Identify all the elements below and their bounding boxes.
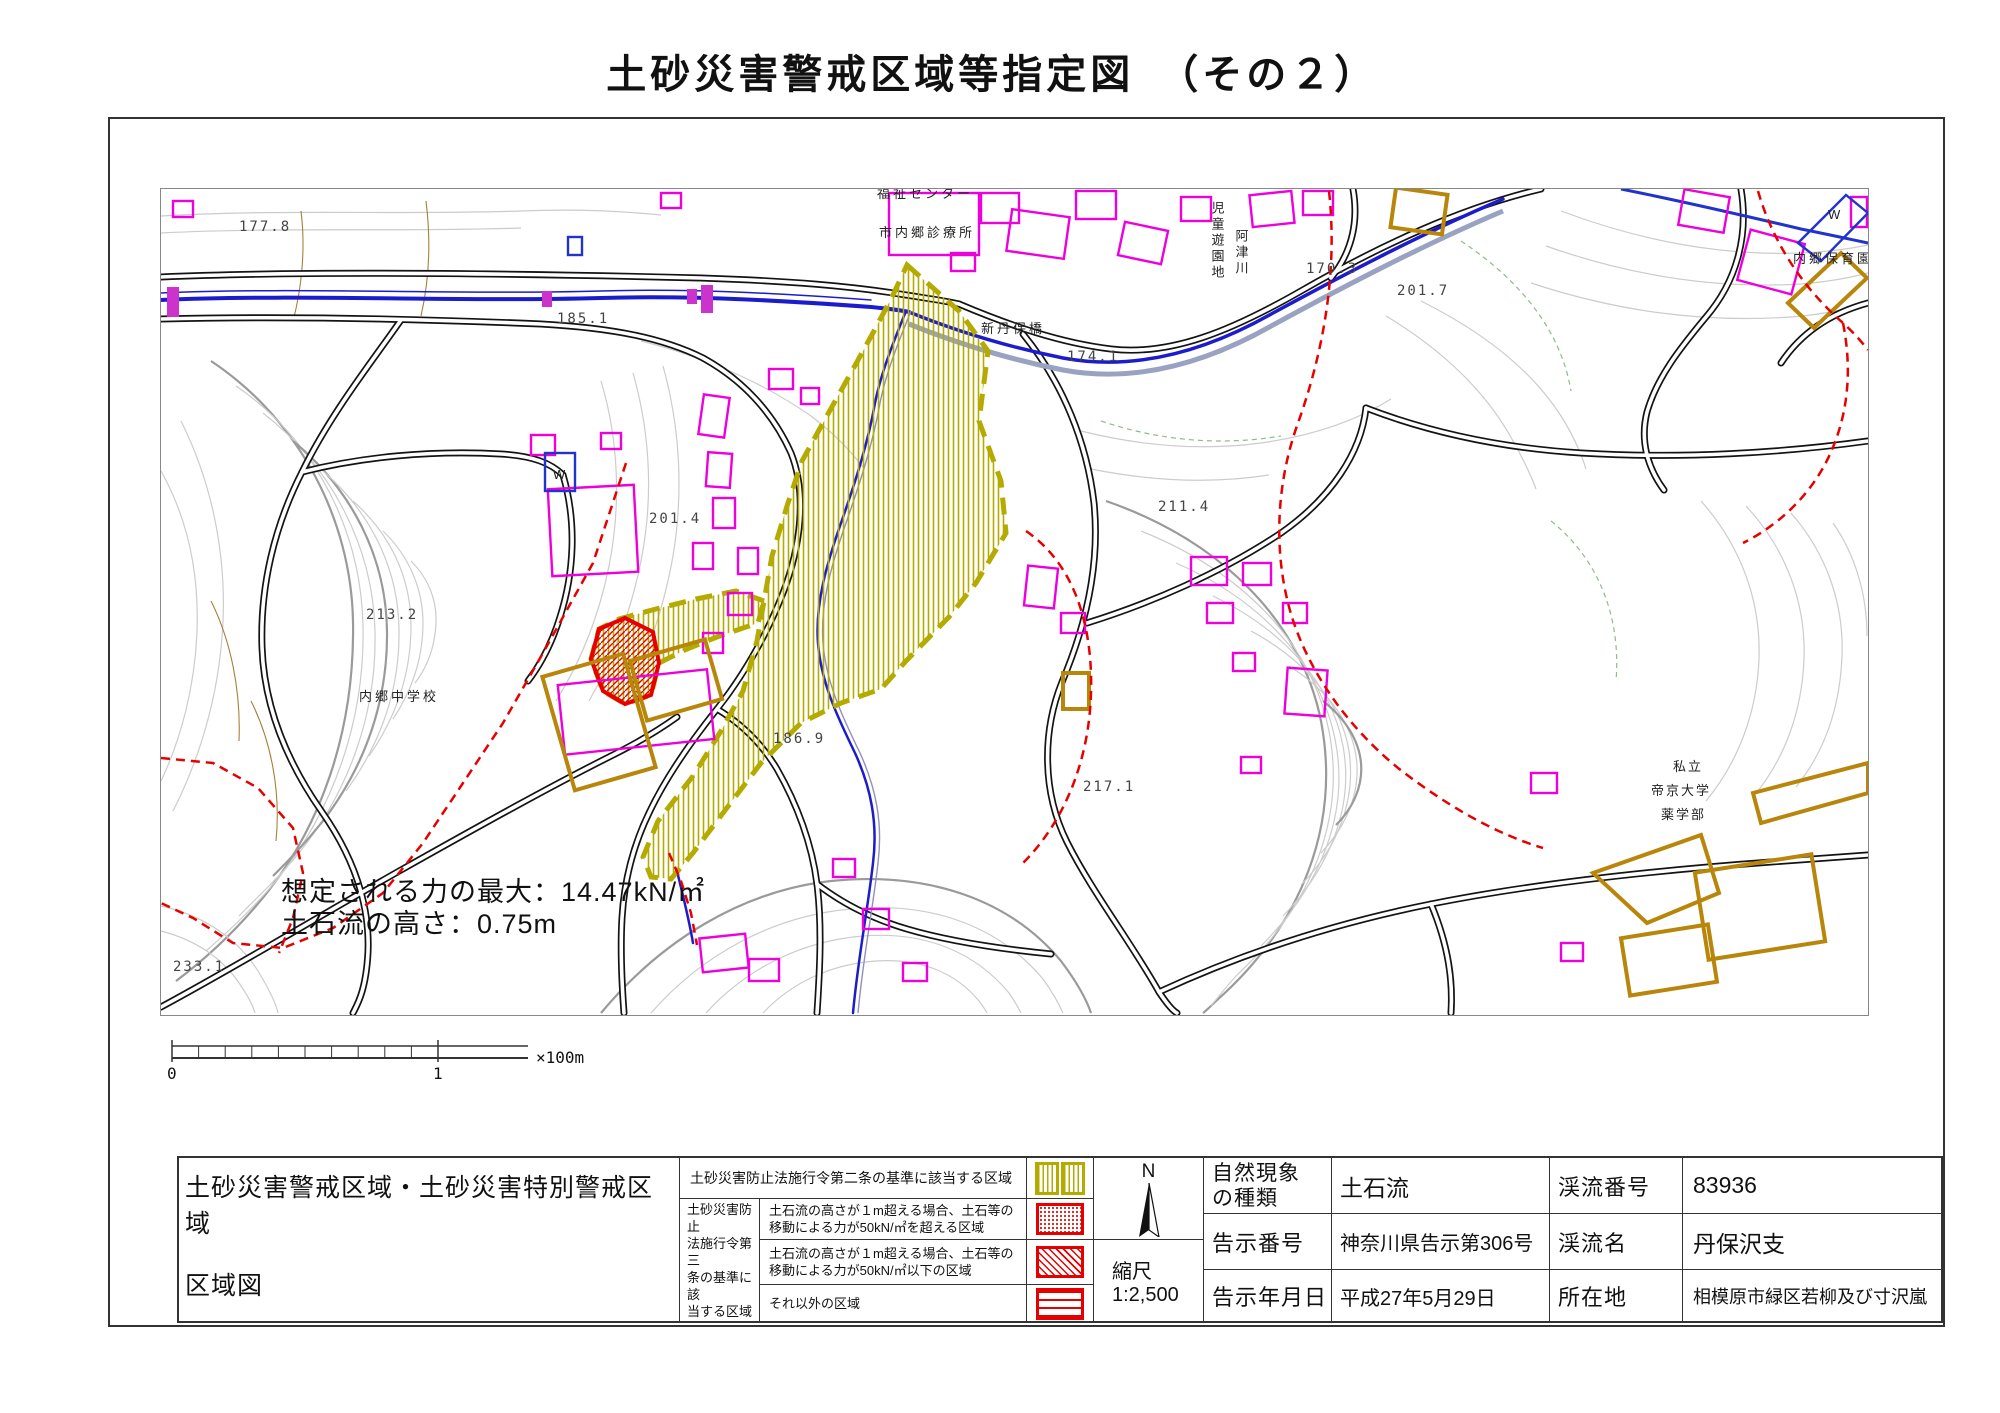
junior-high-label: 内郷中学校 [359,689,439,704]
legend-row2-line2: 移動による力が50kN/㎡を超える区域 [769,1219,1026,1236]
elevation-label: 174.1 [1067,349,1119,365]
stream-name-value-cell: 丹保沢支 [1683,1214,1941,1270]
elevation-label: 186.9 [773,731,825,747]
elevation-label: 233.1 [173,959,225,975]
notice-no-label: 告示番号 [1212,1226,1331,1258]
notice-date-label: 告示年月日 [1212,1280,1331,1312]
university-label-3: 薬学部 [1661,807,1706,822]
weir-mark [167,287,179,317]
north-arrow-icon [1136,1183,1162,1237]
sheet-title-cell: 土砂災害警戒区域・土砂災害特別警戒区域 区域図 [179,1158,680,1323]
north-label: N [1094,1161,1203,1183]
university-label-1: 私立 [1673,759,1703,774]
max-force-annotation: 想定される力の最大：14.47kN/㎡ [281,877,705,907]
nature-label-cell: 自然現象 の種類 [1204,1158,1332,1214]
elevation-label: 201.4 [649,511,701,527]
sheet: { "title": "土砂災害警戒区域等指定図 （その２）", "map_an… [0,0,2000,1413]
legend-row3-cell: 土石流の高さが１m超える場合、土石等の 移動による力が50kN/㎡以下の区域 [760,1240,1027,1285]
legend-row4-text: それ以外の区域 [769,1295,1026,1312]
legend-row2-cell: 土石流の高さが１m超える場合、土石等の 移動による力が50kN/㎡を超える区域 [760,1199,1027,1240]
stream-no-label: 渓流番号 [1558,1170,1682,1202]
elevation-label: 201.7 [1397,283,1449,299]
scale-value: 1:2,500 [1112,1284,1203,1307]
stream-name-label: 渓流名 [1558,1226,1682,1258]
article3-line3: 条の基準に該 [687,1269,759,1303]
red-diagonal-swatch-icon [1036,1246,1084,1278]
nature-label-line1: 自然現象 [1212,1161,1331,1186]
weir-mark [687,289,697,304]
well-mark-w1: W [553,467,566,482]
legend-row3-line1: 土石流の高さが１m超える場合、土石等の [769,1245,1026,1262]
red-dots-swatch-icon [1036,1203,1084,1235]
notice-date-value-cell: 平成27年5月29日 [1332,1270,1550,1323]
stream-name-label-cell: 渓流名 [1550,1214,1683,1270]
nature-value: 土石流 [1340,1169,1549,1203]
page-title: 土砂災害警戒区域等指定図 （その２） [606,42,1378,100]
swatch-cell-2 [1027,1199,1094,1240]
location-value: 相模原市緑区若柳及び寸沢嵐 [1693,1283,1941,1309]
elevation-label: 211.4 [1158,499,1210,515]
stream-no-value: 83936 [1693,1172,1941,1199]
special-warning-zone [591,265,1006,879]
special-zone-swatch-icon [1061,1162,1085,1195]
notice-date-value: 平成27年5月29日 [1340,1282,1549,1311]
scale-bar: 0 1 ×100m [160,1036,620,1086]
river-name-label: 阿津川 [1234,229,1249,277]
sheet-title-line1: 土砂災害警戒区域・土砂災害特別警戒区域 [185,1168,673,1240]
notice-date-label-cell: 告示年月日 [1204,1270,1332,1323]
sheet-title-line2: 区域図 [185,1266,673,1302]
childrens-park-label: 児童遊園地 [1210,201,1225,281]
compass-cell: N [1094,1158,1204,1240]
stream-no-label-cell: 渓流番号 [1550,1158,1683,1214]
special-zone-swatch-icon [1035,1162,1059,1195]
article2-cell: 土砂災害防止法施行令第二条の基準に該当する区域 [680,1158,1027,1199]
notice-no-value-cell: 神奈川県告示第306号 [1332,1214,1550,1270]
nature-label-line2: の種類 [1212,1186,1331,1211]
map-canvas: 市内郷診療所 福祉センター 児童遊園地 阿津川 新丹保橋 内郷中学校 内郷保育園… [161,189,1868,1015]
location-label-cell: 所在地 [1550,1270,1683,1323]
nursery-label: 内郷保育園 [1793,251,1868,266]
scale-zero-label: 0 [167,1064,177,1083]
scale-one-label: 1 [433,1064,443,1083]
flow-height-annotation: 土石流の高さ：0.75m [281,909,557,939]
clinic-label: 市内郷診療所 [879,225,975,240]
legend-row4-cell: それ以外の区域 [760,1285,1027,1323]
well-mark-w2: W [1828,207,1841,222]
elevation-label: 185.1 [557,311,609,327]
bridge-label: 新丹保橋 [981,321,1045,336]
welfare-center-label: 福祉センター [877,189,973,201]
weir-mark [542,291,552,307]
legend-info-table: 土砂災害警戒区域・土砂災害特別警戒区域 区域図 土砂災害防止法施行令第二条の基準… [177,1156,1943,1323]
scale-cell: 縮尺 1:2,500 [1094,1240,1204,1323]
scale-unit-label: ×100m [536,1048,584,1067]
warning-area-boundaries [161,191,1868,953]
legend-row2-line1: 土石流の高さが１m超える場合、土石等の [769,1202,1026,1219]
legend-row3-line2: 移動による力が50kN/㎡以下の区域 [769,1262,1026,1279]
location-value-cell: 相模原市緑区若柳及び寸沢嵐 [1683,1270,1941,1323]
elevation-label: 177.8 [239,219,291,235]
scale-label: 縮尺 [1112,1255,1203,1284]
weir-mark [701,285,713,313]
notice-no-value: 神奈川県告示第306号 [1340,1227,1549,1256]
elevation-label: 213.2 [366,607,418,623]
article3-line1: 土砂災害防止 [687,1201,759,1235]
article2-text: 土砂災害防止法施行令第二条の基準に該当する区域 [690,1169,1026,1188]
swatch-cell-3 [1027,1240,1094,1285]
swatch-cell-1 [1027,1158,1094,1199]
elevation-label: 170.3 [1306,261,1358,277]
red-horizontal-swatch-icon [1036,1288,1084,1320]
stream-name-value: 丹保沢支 [1693,1225,1941,1259]
article3-line4: 当する区域 [687,1303,759,1320]
university-label-2: 帝京大学 [1651,783,1711,798]
article3-group-cell: 土砂災害防止 法施行令第三 条の基準に該 当する区域 [680,1199,760,1323]
swatch-cell-4 [1027,1285,1094,1323]
nature-value-cell: 土石流 [1332,1158,1550,1214]
elevation-label: 217.1 [1083,779,1135,795]
location-label: 所在地 [1558,1280,1682,1312]
stream-no-value-cell: 83936 [1683,1158,1941,1214]
hazard-map: 市内郷診療所 福祉センター 児童遊園地 阿津川 新丹保橋 内郷中学校 内郷保育園… [160,188,1869,1016]
buildings-magenta [173,189,1867,981]
notice-no-label-cell: 告示番号 [1204,1214,1332,1270]
article3-line2: 法施行令第三 [687,1235,759,1269]
